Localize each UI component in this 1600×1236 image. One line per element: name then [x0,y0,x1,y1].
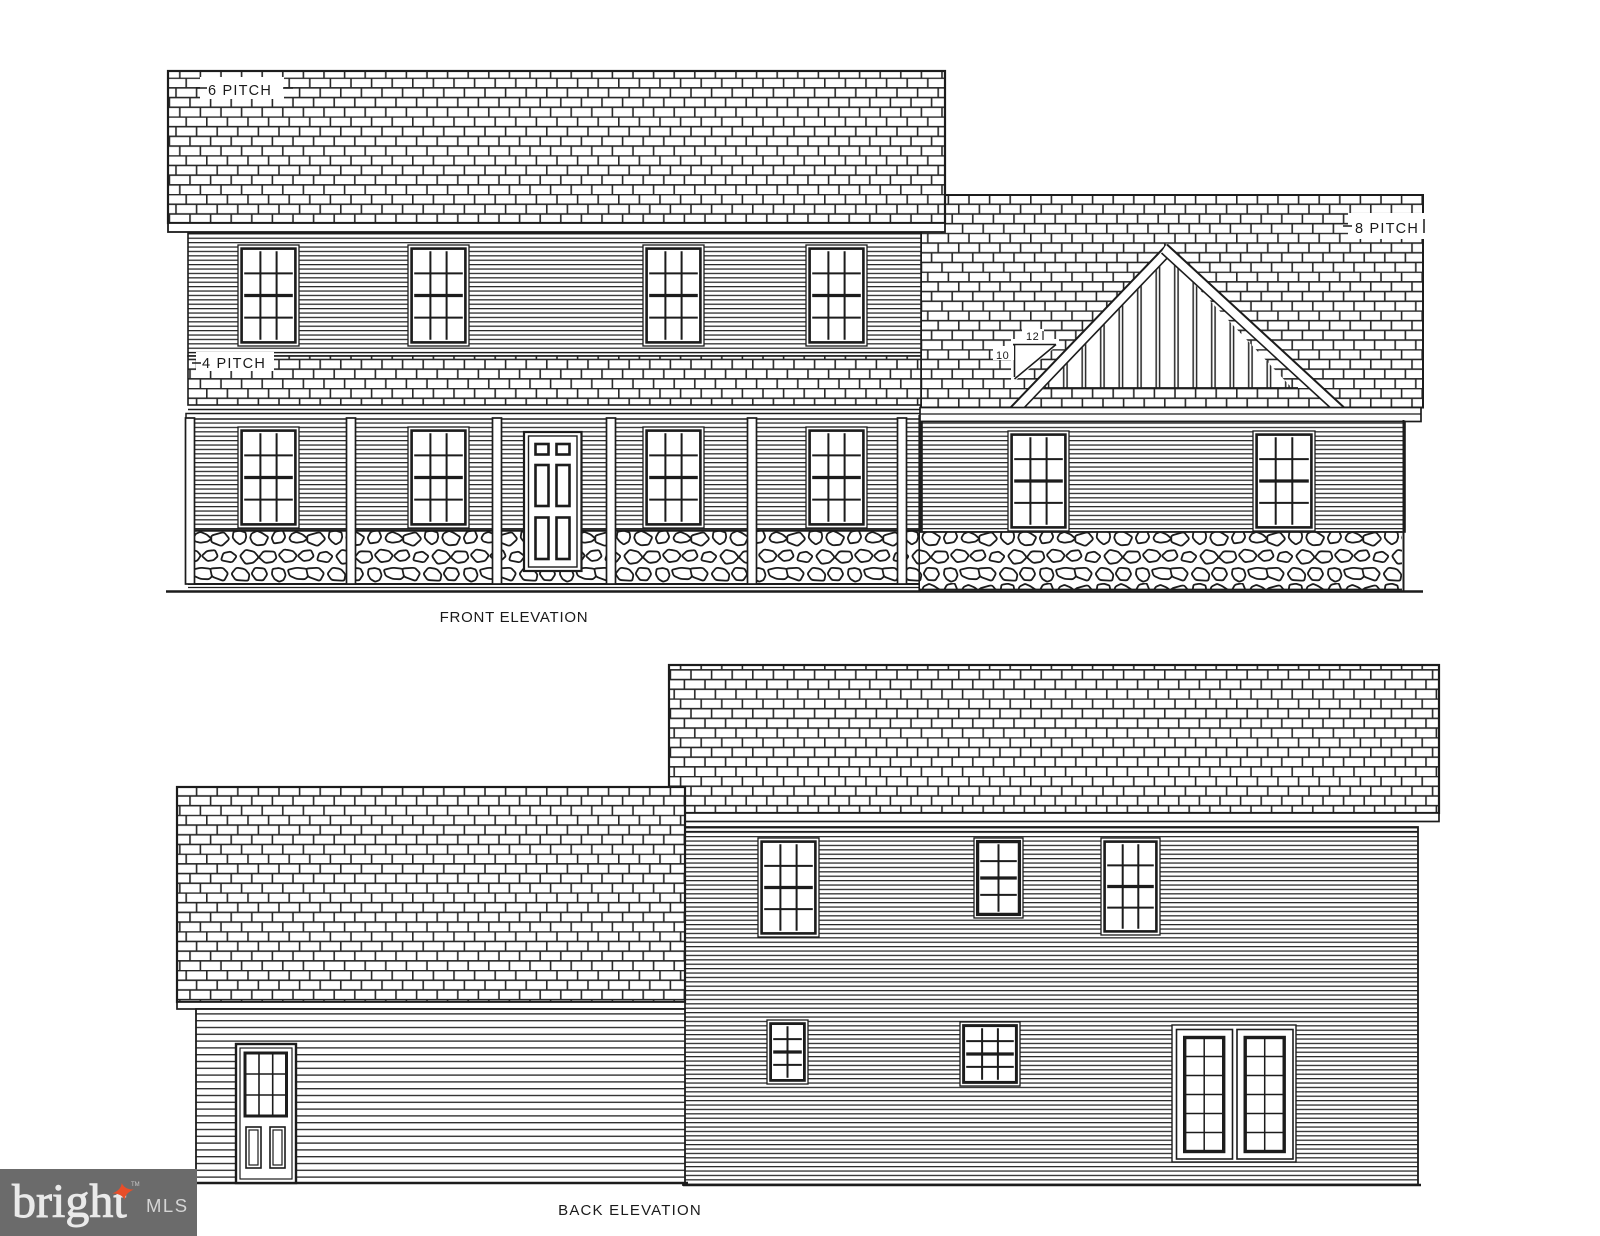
svg-text:10: 10 [996,350,1009,362]
svg-text:FRONT ELEVATION: FRONT ELEVATION [440,609,589,626]
svg-text:bright: bright [12,1175,127,1228]
svg-text:MLS: MLS [146,1195,189,1216]
svg-text:6 PITCH: 6 PITCH [208,83,272,99]
svg-text:TM: TM [131,1182,140,1188]
svg-text:12: 12 [1026,331,1039,343]
svg-text:8 PITCH: 8 PITCH [1355,221,1419,237]
svg-text:BACK ELEVATION: BACK ELEVATION [558,1202,702,1219]
svg-text:4 PITCH: 4 PITCH [202,356,266,372]
